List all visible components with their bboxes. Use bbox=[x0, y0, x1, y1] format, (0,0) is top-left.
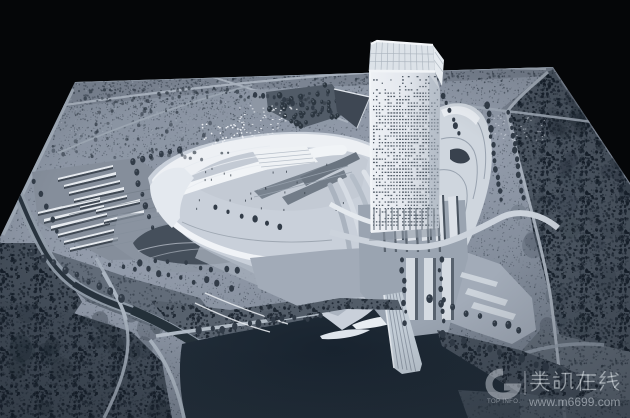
svg-text:www.m6699.com: www.m6699.com bbox=[528, 395, 620, 409]
svg-text:TOP INFO.: TOP INFO. bbox=[487, 399, 520, 405]
